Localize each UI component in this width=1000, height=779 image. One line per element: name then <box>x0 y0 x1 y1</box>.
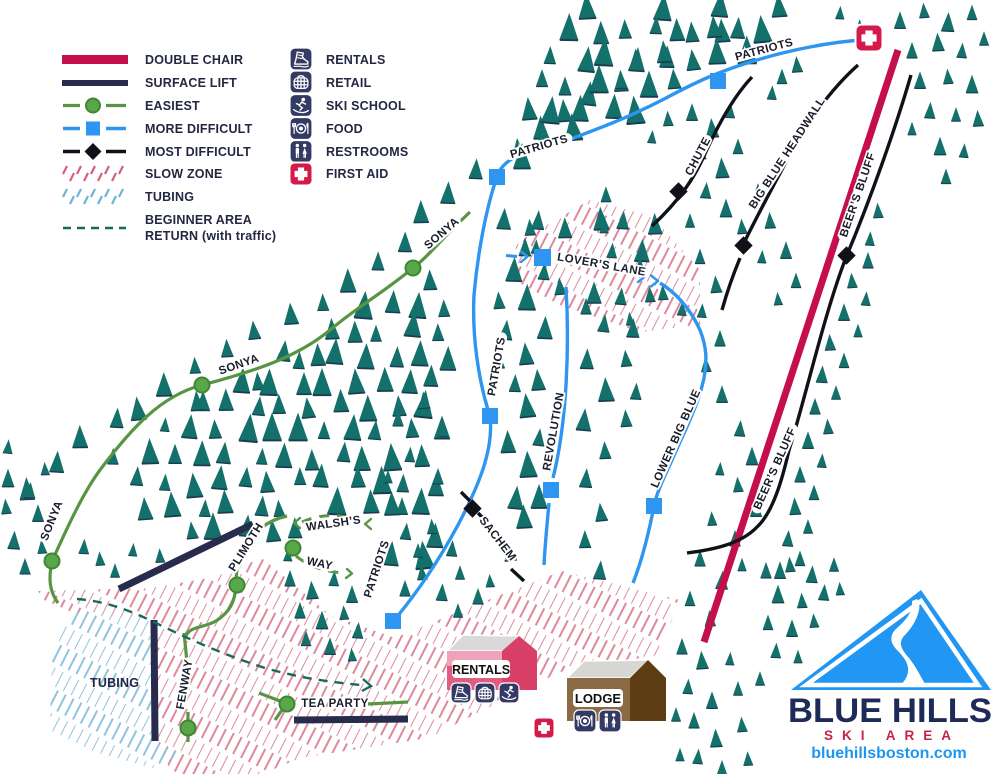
svg-text:RETAIL: RETAIL <box>326 76 372 90</box>
svg-text:BLUE HILLS: BLUE HILLS <box>788 692 992 730</box>
svg-text:SURFACE LIFT: SURFACE LIFT <box>145 76 237 90</box>
svg-text:MORE DIFFICULT: MORE DIFFICULT <box>145 122 253 136</box>
svg-text:EASIEST: EASIEST <box>145 99 200 113</box>
svg-text:TEA PARTY: TEA PARTY <box>301 698 369 710</box>
svg-text:BEGINNER AREA: BEGINNER AREA <box>145 213 252 227</box>
svg-text:TUBING: TUBING <box>90 676 139 690</box>
svg-text:FOOD: FOOD <box>326 122 363 136</box>
svg-text:SLOW ZONE: SLOW ZONE <box>145 167 223 181</box>
svg-text:SKI SCHOOL: SKI SCHOOL <box>326 99 406 113</box>
svg-text:RETURN (with traffic): RETURN (with traffic) <box>145 229 276 243</box>
svg-text:FIRST AID: FIRST AID <box>326 167 388 181</box>
svg-text:TUBING: TUBING <box>145 190 194 204</box>
svg-text:LODGE: LODGE <box>575 691 622 706</box>
svg-text:RENTALS: RENTALS <box>452 663 510 677</box>
svg-text:RENTALS: RENTALS <box>326 53 386 67</box>
svg-text:bluehillsboston.com: bluehillsboston.com <box>811 745 967 762</box>
svg-text:DOUBLE CHAIR: DOUBLE CHAIR <box>145 53 243 67</box>
svg-text:MOST DIFFICULT: MOST DIFFICULT <box>145 145 251 159</box>
svg-text:SKI AREA: SKI AREA <box>824 728 960 743</box>
svg-text:RESTROOMS: RESTROOMS <box>326 145 408 159</box>
